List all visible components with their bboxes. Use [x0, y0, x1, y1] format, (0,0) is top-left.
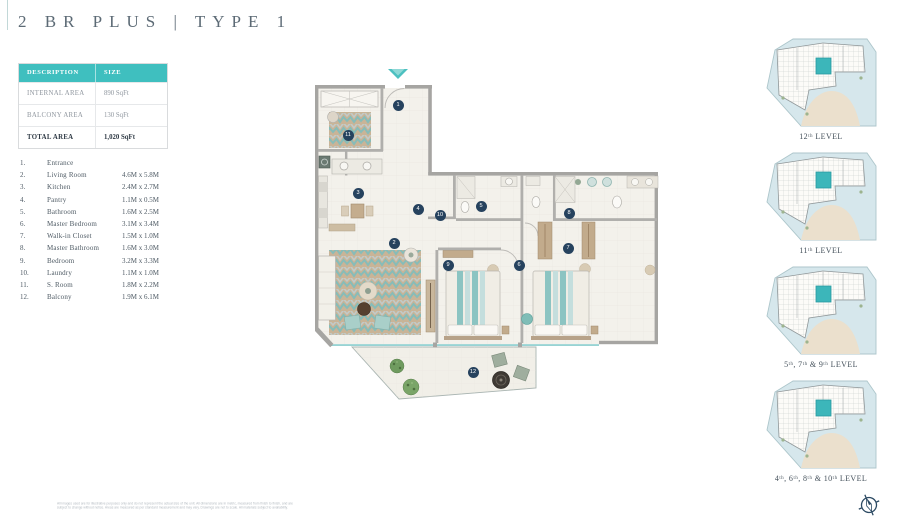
level-map — [763, 36, 879, 130]
legend-number: 1 — [20, 159, 47, 167]
legend-number: 7 — [20, 232, 47, 240]
area-row-value: 130 SqFt — [96, 105, 167, 126]
legend-number: 4 — [20, 196, 47, 204]
room-marker-10: 10 — [435, 210, 446, 221]
legend-row: 1 Entrance — [20, 157, 205, 169]
room-legend: 1 Entrance 2 Living Room 4.6M x 5.8M 3 K… — [20, 157, 205, 303]
legend-number: 8 — [20, 244, 47, 252]
balcony-table — [493, 372, 510, 389]
area-row-label: BALCONY AREA — [19, 105, 96, 126]
room-marker-6: 6 — [514, 260, 525, 271]
highlighted-unit — [816, 400, 831, 416]
legend-room-dimensions: 2.4M x 2.7M — [122, 183, 205, 191]
legend-room-name: Laundry — [47, 269, 122, 277]
toilet-icon — [613, 196, 622, 208]
level-label: 5ᵗʰ, 7ᵗʰ & 9ᵗʰ LEVEL — [752, 360, 890, 369]
level-key-plans: 12ᵗʰ LEVEL 11ᵗʰ LEVEL — [752, 36, 890, 492]
level-map — [763, 150, 879, 244]
area-table-header-size: SIZE — [96, 64, 167, 82]
legend-room-name: Walk-in Closet — [47, 232, 122, 240]
area-row-label: INTERNAL AREA — [19, 83, 96, 104]
legend-row: 4 Pantry 1.1M x 0.5M — [20, 194, 205, 206]
legend-row: 5 Bathroom 1.6M x 2.5M — [20, 206, 205, 218]
legend-room-name: Bathroom — [47, 208, 122, 216]
legend-room-name: S. Room — [47, 281, 122, 289]
legend-row: 7 Walk-in Closet 1.5M x 1.0M — [20, 230, 205, 242]
room-marker-9: 9 — [443, 260, 454, 271]
legend-number: 5 — [20, 208, 47, 216]
armchair — [344, 315, 361, 330]
page-title: 2 BR PLUS | TYPE 1 — [18, 12, 292, 32]
level-map — [763, 378, 879, 472]
legend-row: 3 Kitchen 2.4M x 2.7M — [20, 181, 205, 193]
dining-table — [351, 204, 364, 218]
compass-north-icon — [856, 492, 882, 518]
legend-room-dimensions: 1.6M x 2.5M — [122, 208, 205, 216]
level-key-plan: 12ᵗʰ LEVEL — [752, 36, 890, 141]
level-map — [763, 264, 879, 358]
pouf — [522, 314, 533, 325]
legend-number: 6 — [20, 220, 47, 228]
legend-room-dimensions: 4.6M x 5.8M — [122, 171, 205, 179]
level-key-plan: 11ᵗʰ LEVEL — [752, 150, 890, 255]
legend-room-name: Entrance — [47, 159, 122, 167]
toilet-icon — [532, 197, 540, 208]
legend-number: 10 — [20, 269, 47, 277]
legend-number: 12 — [20, 293, 47, 301]
area-table-row: TOTAL AREA 1,020 SqFt — [19, 126, 167, 148]
legend-row: 2 Living Room 4.6M x 5.8M — [20, 169, 205, 181]
page-edge-accent — [7, 0, 8, 30]
toilet-icon — [461, 202, 469, 213]
legend-room-dimensions: 1.8M x 2.2M — [122, 281, 205, 289]
room-marker-11: 11 — [343, 130, 354, 141]
living-room — [319, 248, 436, 335]
level-key-plan: 4ᵗʰ, 6ᵗʰ, 8ᵗʰ & 10ᵗʰ LEVEL — [752, 378, 890, 483]
legend-room-name: Kitchen — [47, 183, 122, 191]
room-marker-8: 8 — [564, 208, 575, 219]
legend-room-dimensions: 1.6M x 3.0M — [122, 244, 205, 252]
level-label: 11ᵗʰ LEVEL — [752, 246, 890, 255]
floor-plan — [305, 58, 665, 428]
brochure-page: 2 BR PLUS | TYPE 1 DESCRIPTION SIZE INTE… — [0, 0, 900, 525]
washing-machine-icon — [319, 156, 330, 168]
level-key-plan: 5ᵗʰ, 7ᵗʰ & 9ᵗʰ LEVEL — [752, 264, 890, 369]
legend-row: 6 Master Bedroom 3.1M x 3.4M — [20, 218, 205, 230]
room-marker-7: 7 — [563, 243, 574, 254]
room-marker-4: 4 — [413, 204, 424, 215]
legend-room-dimensions: 3.2M x 3.3M — [122, 257, 205, 265]
legend-room-dimensions: 1.1M x 0.5M — [122, 196, 205, 204]
legend-room-name: Balcony — [47, 293, 122, 301]
area-table-header-description: DESCRIPTION — [19, 64, 96, 82]
entrance-arrow-icon — [388, 69, 408, 79]
legend-room-dimensions: 1.5M x 1.0M — [122, 232, 205, 240]
legend-row: 12 Balcony 1.9M x 6.1M — [20, 291, 205, 303]
legend-room-dimensions: 1.9M x 6.1M — [122, 293, 205, 301]
legend-row: 8 Master Bathroom 1.6M x 3.0M — [20, 242, 205, 254]
legend-number: 2 — [20, 171, 47, 179]
legend-room-name: Master Bedroom — [47, 220, 122, 228]
room-marker-1: 1 — [393, 100, 404, 111]
area-row-label: TOTAL AREA — [19, 127, 96, 148]
area-row-value: 890 SqFt — [96, 83, 167, 104]
disclaimer-text: All images used are for illustrative pur… — [57, 502, 317, 510]
legend-row: 10 Laundry 1.1M x 1.0M — [20, 267, 205, 279]
area-table-row: INTERNAL AREA 890 SqFt — [19, 82, 167, 104]
area-table-row: BALCONY AREA 130 SqFt — [19, 104, 167, 126]
legend-row: 11 S. Room 1.8M x 2.2M — [20, 279, 205, 291]
legend-room-dimensions: 1.1M x 1.0M — [122, 269, 205, 277]
room-marker-5: 5 — [476, 201, 487, 212]
legend-room-name: Master Bathroom — [47, 244, 122, 252]
highlighted-unit — [816, 286, 831, 302]
legend-number: 3 — [20, 183, 47, 191]
legend-room-name: Living Room — [47, 171, 122, 179]
disclaimer-line-2: subject to change without notice. Areas … — [57, 506, 317, 510]
legend-room-dimensions: 3.1M x 3.4M — [122, 220, 205, 228]
legend-room-name: Bedroom — [47, 257, 122, 265]
room-marker-12: 12 — [468, 367, 479, 378]
balcony-plant-icon — [403, 379, 419, 395]
legend-row: 9 Bedroom 3.2M x 3.3M — [20, 255, 205, 267]
level-label: 4ᵗʰ, 6ᵗʰ, 8ᵗʰ & 10ᵗʰ LEVEL — [752, 474, 890, 483]
legend-number: 11 — [20, 281, 47, 289]
balcony-area — [352, 347, 536, 399]
legend-number: 9 — [20, 257, 47, 265]
armchair — [374, 315, 391, 330]
area-table: DESCRIPTION SIZE INTERNAL AREA 890 SqFt … — [18, 63, 168, 149]
highlighted-unit — [816, 58, 831, 74]
room-marker-2: 2 — [389, 238, 400, 249]
room-marker-3: 3 — [353, 188, 364, 199]
legend-room-name: Pantry — [47, 196, 122, 204]
coffee-table — [358, 303, 371, 316]
highlighted-unit — [816, 172, 831, 188]
area-table-header: DESCRIPTION SIZE — [19, 64, 167, 82]
area-table-body: INTERNAL AREA 890 SqFt BALCONY AREA 130 … — [19, 82, 167, 148]
area-row-value: 1,020 SqFt — [96, 127, 167, 148]
level-label: 12ᵗʰ LEVEL — [752, 132, 890, 141]
